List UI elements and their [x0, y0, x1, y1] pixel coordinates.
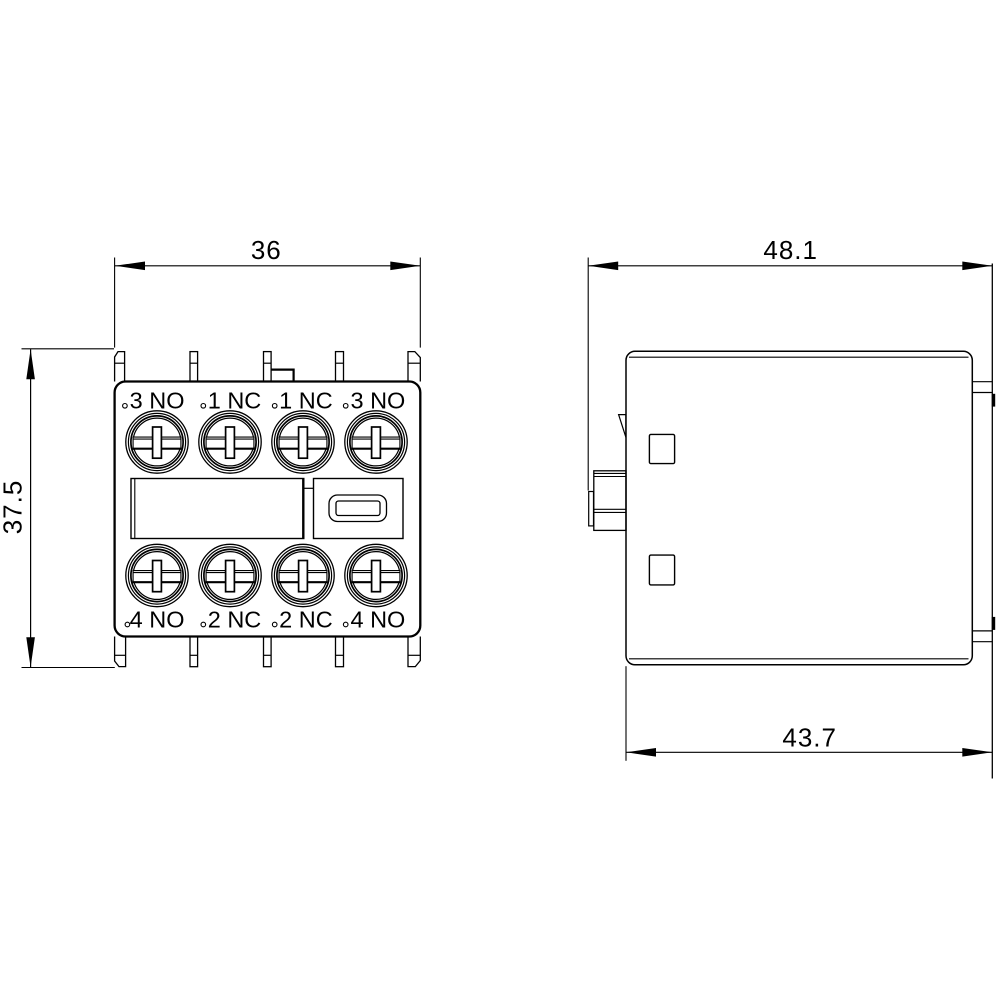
svg-text:3 NO: 3 NO [350, 388, 405, 414]
svg-text:1 NC: 1 NC [279, 388, 333, 414]
svg-text:1 NC: 1 NC [208, 388, 262, 414]
svg-text:4 NO: 4 NO [130, 606, 185, 632]
svg-text:4 NO: 4 NO [350, 606, 405, 632]
svg-text:48.1: 48.1 [763, 235, 818, 265]
svg-text:37.5: 37.5 [0, 480, 28, 535]
svg-text:3 NO: 3 NO [130, 388, 185, 414]
svg-text:43.7: 43.7 [782, 723, 837, 753]
svg-text:2 NC: 2 NC [279, 606, 333, 632]
svg-text:2 NC: 2 NC [208, 606, 262, 632]
svg-text:36: 36 [251, 235, 282, 265]
